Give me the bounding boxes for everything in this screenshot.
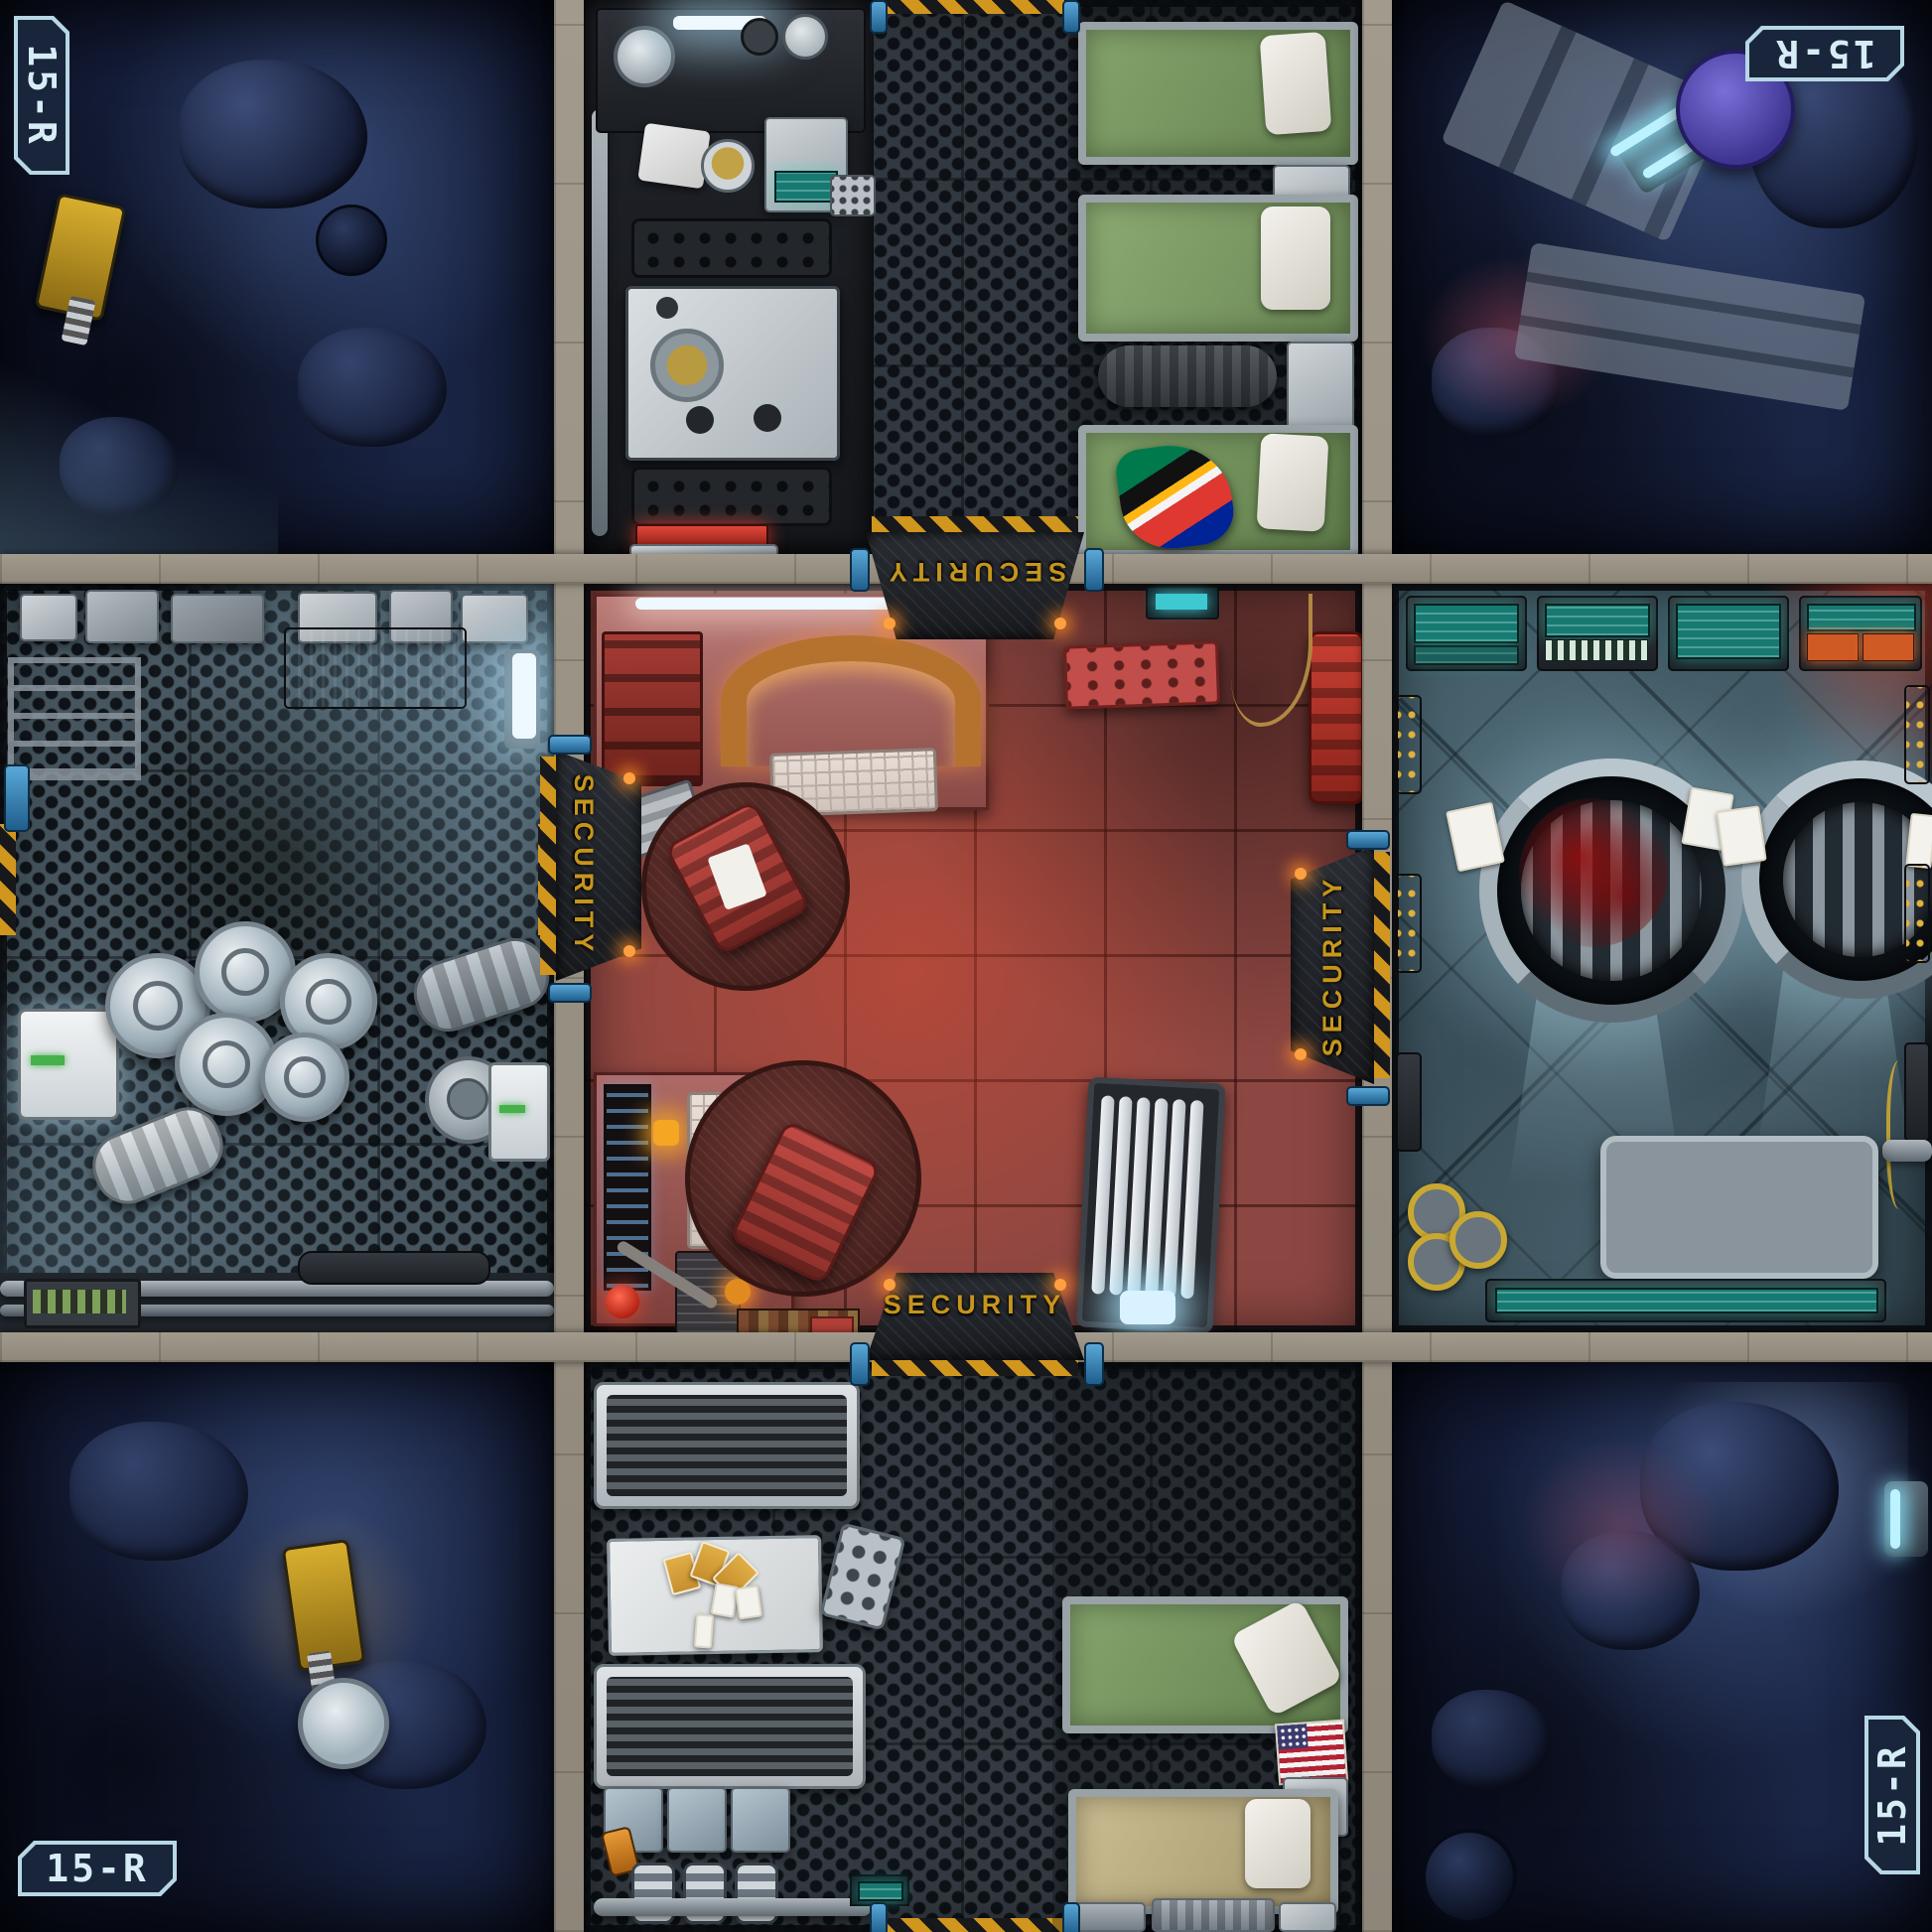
yellow-cable	[1886, 1060, 1918, 1209]
game-board-tile-15r: SECURITY SECURITY SECURITY SECURITY 15-R	[0, 0, 1932, 1932]
perforated-bench-red	[1063, 640, 1220, 709]
security-door-bottom[interactable]: SECURITY	[866, 1273, 1084, 1376]
perforated-stool	[819, 1522, 905, 1630]
door-clamp	[1346, 830, 1390, 850]
pillow	[1261, 207, 1330, 310]
shelf-crate	[85, 590, 159, 643]
security-door-label: SECURITY	[568, 766, 600, 965]
white-canister	[298, 1678, 389, 1769]
floor-pipe	[594, 1898, 872, 1916]
hazard-stripe	[878, 0, 1064, 14]
battery-unit	[488, 1062, 550, 1162]
clipboard	[707, 843, 766, 910]
zone-security-room[interactable]	[584, 584, 1362, 1332]
zone-galley-and-bunks[interactable]	[584, 0, 1362, 554]
tile-id-text: 15-R	[1870, 1743, 1914, 1847]
zone-storage-hold[interactable]	[0, 584, 554, 1332]
teal-screen	[1545, 604, 1650, 637]
cable-loop	[1231, 594, 1312, 727]
amber-alarm-lamp	[653, 1120, 679, 1146]
mess-bench	[594, 1382, 860, 1509]
security-door-right[interactable]: SECURITY	[1291, 846, 1390, 1084]
teal-screen	[1495, 1288, 1878, 1313]
wall-pipe	[592, 109, 608, 536]
door-clamp	[850, 1342, 870, 1386]
yellow-ring-cylinder	[1449, 1211, 1507, 1269]
cyan-light-bar	[1890, 1489, 1900, 1549]
hazard-stripe	[540, 757, 556, 975]
storage-locker	[667, 1787, 727, 1853]
rock	[298, 328, 447, 447]
sunken-barrel	[316, 205, 387, 276]
teal-screen	[1807, 604, 1916, 631]
bench-cushion	[607, 1395, 847, 1496]
tile-id-text: 15-R	[1773, 32, 1876, 75]
stub-pipe	[1882, 1140, 1932, 1162]
burner	[754, 404, 781, 432]
security-door-label: SECURITY	[876, 1289, 1074, 1320]
wall-panel	[1396, 874, 1422, 973]
door-light	[623, 945, 635, 957]
security-door-label: SECURITY	[1316, 866, 1348, 1064]
shelf-crate	[171, 594, 264, 643]
console-panel	[1668, 596, 1789, 671]
teal-screen	[1156, 594, 1207, 610]
teal-screen	[1414, 645, 1519, 665]
teal-screen	[1676, 604, 1781, 659]
security-door-left[interactable]: SECURITY	[540, 751, 641, 981]
door-clamp	[1062, 1902, 1080, 1932]
door-light	[884, 1279, 896, 1291]
door-light	[1054, 618, 1066, 629]
console-panel	[1406, 596, 1527, 671]
storage-drum	[260, 1033, 349, 1122]
storage-box	[1287, 342, 1354, 431]
burner	[656, 297, 678, 319]
teal-screen	[1414, 604, 1519, 643]
shelf-crate	[461, 594, 528, 643]
zone-seabed-top-left[interactable]	[0, 0, 554, 554]
rock	[1432, 1690, 1551, 1789]
jar	[741, 18, 778, 56]
vent-grill	[631, 467, 832, 526]
green-led-strip	[31, 1055, 65, 1065]
storage-locker	[731, 1787, 790, 1853]
machinery-block	[1279, 1902, 1336, 1932]
door-clamp	[1062, 0, 1080, 34]
rack-lamp	[1120, 1291, 1175, 1324]
security-door-top[interactable]: SECURITY	[866, 516, 1084, 639]
burner-pot	[650, 329, 724, 402]
door-light	[1295, 1048, 1307, 1060]
door-light	[884, 618, 896, 629]
glowing-device	[1884, 1481, 1928, 1557]
battery-unit	[18, 1009, 119, 1120]
wall-panel	[1904, 685, 1930, 784]
security-door-label: SECURITY	[876, 556, 1074, 588]
hazard-stripe	[878, 1918, 1064, 1932]
zone-mess-hall-and-bunks[interactable]	[584, 1362, 1362, 1932]
tile-id-text: 15-R	[46, 1847, 149, 1890]
checklist-card	[1446, 802, 1505, 873]
tile-id-badge-top-right: 15-R	[1745, 26, 1904, 81]
display-base	[629, 544, 778, 554]
hazard-stripe	[1374, 852, 1390, 1078]
curved-monitor	[721, 635, 981, 766]
door-clamp	[850, 548, 870, 592]
ammo-crate	[24, 1279, 141, 1328]
pillow	[1257, 433, 1329, 531]
tile-id-text: 15-R	[20, 44, 64, 147]
sink	[614, 26, 675, 87]
keypad	[830, 175, 876, 216]
light-beam	[0, 357, 278, 554]
tray-display	[774, 171, 838, 203]
sunken-barrel	[1422, 1829, 1517, 1924]
door-clamp	[870, 1902, 888, 1932]
wall-panel	[1396, 1052, 1422, 1152]
round-canister-lid	[447, 1078, 488, 1120]
tile-id-badge-top-left: 15-R	[14, 16, 69, 175]
bedroll	[1098, 345, 1277, 407]
green-led-strip	[499, 1105, 525, 1113]
floor-hatch-plate	[298, 1251, 490, 1285]
hazard-stripe	[0, 824, 16, 935]
wall-panel-blue	[4, 764, 30, 832]
rock	[179, 60, 367, 208]
cargo-crate	[1600, 1136, 1878, 1279]
zone-seabed-top-right[interactable]	[1392, 0, 1932, 554]
wall-panel	[1904, 864, 1930, 963]
teal-screen	[858, 1881, 903, 1901]
door-light	[623, 772, 635, 784]
us-flag	[1275, 1720, 1348, 1786]
machinery-block	[1072, 1902, 1146, 1932]
zone-seabed-bottom-right[interactable]	[1392, 1362, 1932, 1932]
pot	[782, 14, 828, 60]
burner	[686, 406, 714, 434]
shelf-crate	[20, 594, 77, 641]
red-siren	[606, 1285, 639, 1318]
door-light	[1054, 1279, 1066, 1291]
zone-hatch-bay[interactable]	[1392, 584, 1932, 1332]
playing-card	[735, 1585, 762, 1619]
vent-grill	[631, 218, 832, 278]
door-clamp	[548, 735, 592, 755]
pillow	[1260, 32, 1332, 135]
domino	[694, 1613, 714, 1648]
console-panel	[1537, 596, 1658, 671]
stove-unit	[625, 286, 840, 461]
door-clamp	[1084, 1342, 1104, 1386]
door-light	[1295, 868, 1307, 880]
hazard-stripe	[872, 1360, 1078, 1376]
mess-bench	[594, 1664, 866, 1789]
red-machine	[1309, 631, 1362, 804]
hazard-stripe	[872, 516, 1078, 532]
small-red-table	[810, 1316, 854, 1332]
tile-id-badge-bottom-left: 15-R	[18, 1841, 177, 1896]
door-clamp	[1084, 548, 1104, 592]
checklist-card	[1716, 805, 1766, 867]
door-clamp	[1346, 1086, 1390, 1106]
blood-stain	[1519, 798, 1668, 947]
blue-screen-device	[1146, 586, 1219, 620]
door-clamp	[870, 0, 888, 34]
orange-screen	[1807, 633, 1859, 661]
console-panel	[1799, 596, 1922, 671]
napkin	[637, 123, 710, 190]
orange-screen	[1863, 633, 1914, 661]
ammo-shells	[33, 1290, 126, 1313]
door-clamp	[548, 983, 592, 1003]
checklist-card	[1905, 813, 1932, 869]
machinery-block	[1152, 1898, 1275, 1932]
glow-lamp	[512, 653, 536, 739]
control-cabinet	[284, 627, 467, 709]
long-console	[1485, 1279, 1886, 1322]
bench-cushion	[607, 1677, 853, 1776]
food-bowl	[701, 139, 755, 193]
flag-canton	[1277, 1724, 1309, 1749]
scaffold-rack	[8, 657, 141, 780]
tile-id-badge-bottom-right: 15-R	[1864, 1716, 1920, 1874]
pillow	[1245, 1799, 1311, 1888]
digit-readout	[1545, 639, 1648, 661]
wall-panel	[1396, 695, 1422, 794]
coral-patch	[1511, 1432, 1729, 1620]
